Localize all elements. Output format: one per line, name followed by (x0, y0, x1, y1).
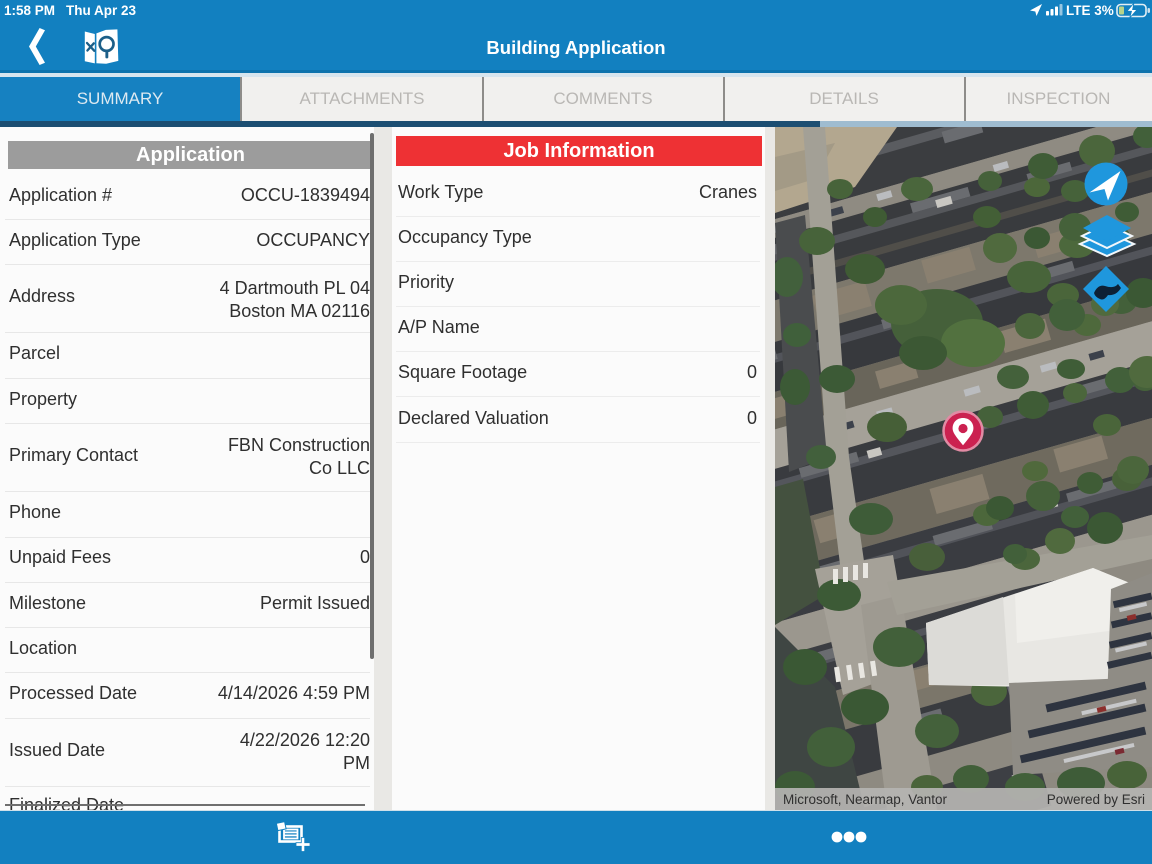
svg-text:Microsoft, Nearmap, Vantor: Microsoft, Nearmap, Vantor (783, 792, 948, 807)
svg-text:LTE 3%: LTE 3% (1066, 3, 1114, 18)
svg-text:Powered by Esri: Powered by Esri (1047, 792, 1145, 807)
